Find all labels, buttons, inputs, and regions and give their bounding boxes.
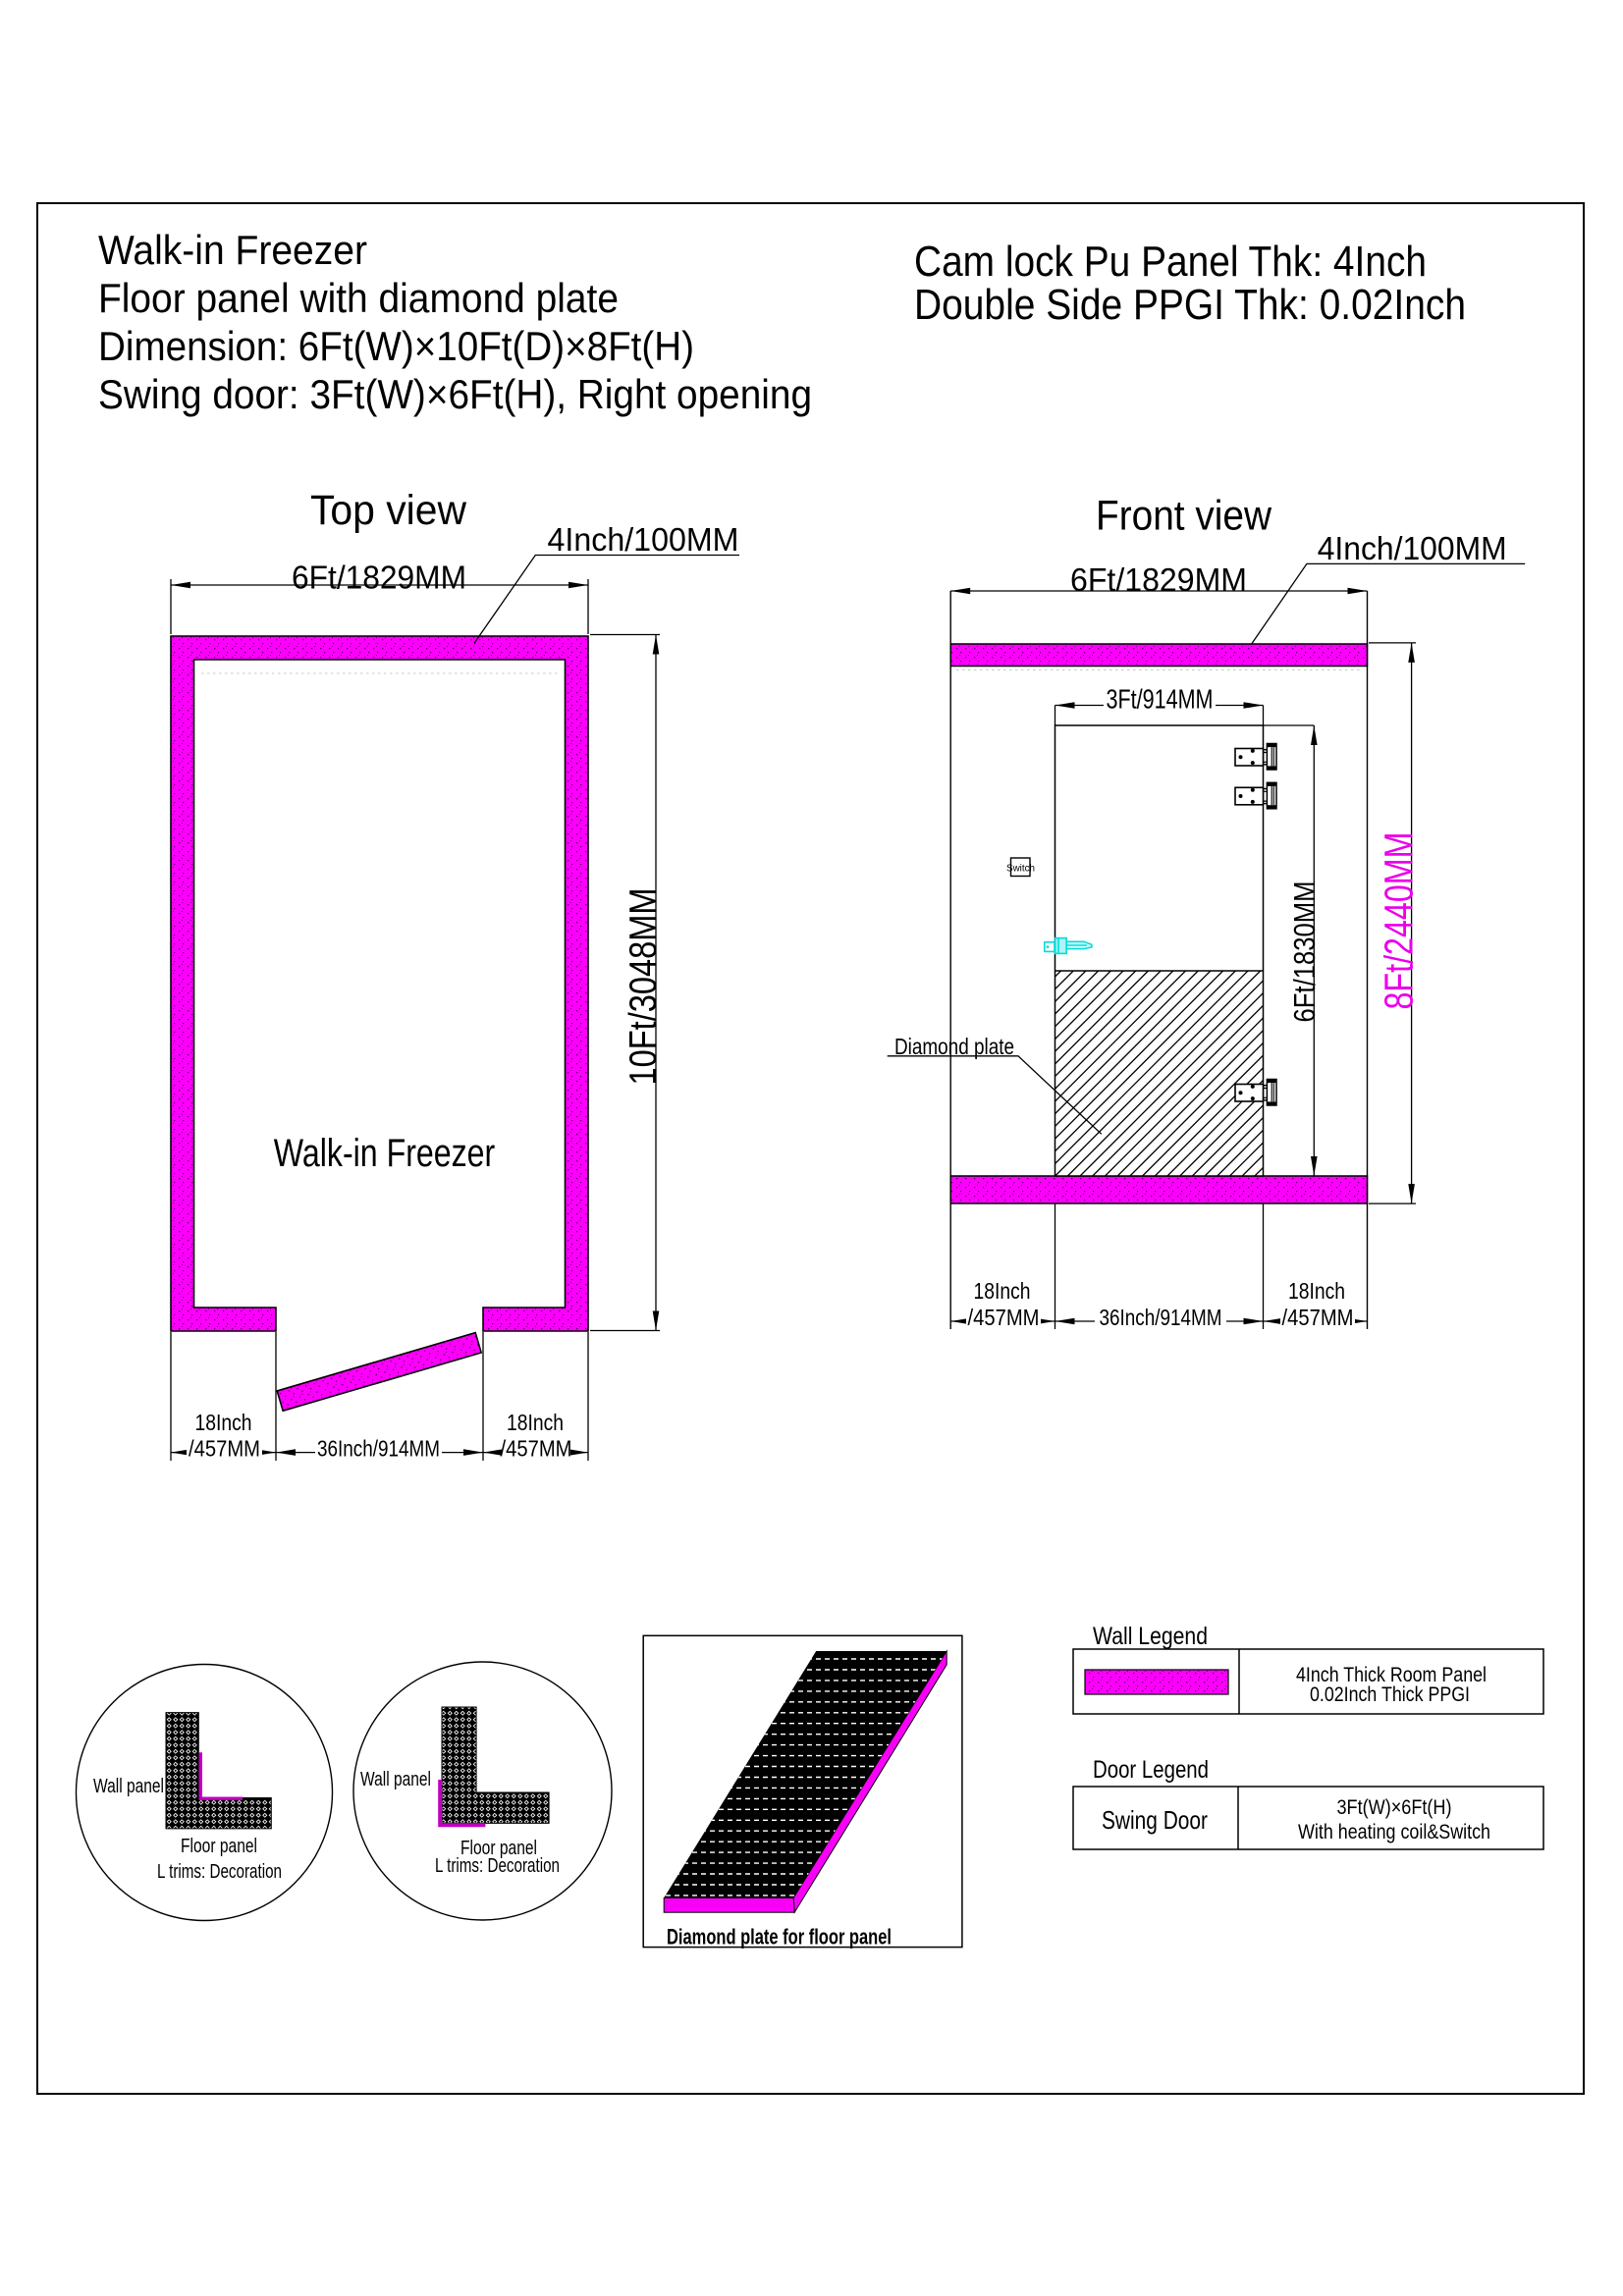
svg-text:Wall panel: Wall panel (93, 1775, 164, 1797)
svg-text:Dimension: 6Ft(W)×10Ft(D)×8Ft(: Dimension: 6Ft(W)×10Ft(D)×8Ft(H) (98, 323, 694, 369)
svg-text:Door Legend: Door Legend (1093, 1756, 1209, 1784)
svg-text:3Ft/914MM: 3Ft/914MM (1107, 684, 1214, 715)
svg-text:6Ft/1829MM: 6Ft/1829MM (1070, 561, 1247, 598)
svg-text:36Inch/914MM: 36Inch/914MM (1100, 1305, 1222, 1330)
svg-text:/457MM: /457MM (1282, 1305, 1354, 1330)
svg-text:3Ft(W)×6Ft(H): 3Ft(W)×6Ft(H) (1337, 1796, 1452, 1819)
svg-text:Swing door: 3Ft(W)×6Ft(H), Rig: Swing door: 3Ft(W)×6Ft(H), Right opening (98, 371, 812, 417)
svg-text:/457MM: /457MM (501, 1436, 572, 1462)
svg-text:36Inch/914MM: 36Inch/914MM (317, 1436, 440, 1462)
svg-text:4Inch/100MM: 4Inch/100MM (548, 521, 739, 558)
svg-text:18Inch: 18Inch (507, 1410, 564, 1435)
svg-text:Wall panel: Wall panel (360, 1768, 431, 1790)
svg-text:6Ft/1829MM: 6Ft/1829MM (292, 560, 466, 596)
svg-text:Walk-in Freezer: Walk-in Freezer (98, 227, 367, 273)
svg-text:6Ft/1830MM: 6Ft/1830MM (1287, 881, 1322, 1023)
svg-text:0.02Inch Thick PPGI: 0.02Inch Thick PPGI (1310, 1683, 1470, 1706)
svg-text:Swing Door: Swing Door (1102, 1805, 1208, 1835)
svg-text:Wall Legend: Wall Legend (1093, 1623, 1208, 1650)
svg-text:18Inch: 18Inch (195, 1410, 252, 1435)
svg-text:Top view: Top view (310, 488, 466, 534)
svg-text:Double Side PPGI Thk: 0.02Inch: Double Side PPGI Thk: 0.02Inch (914, 281, 1466, 329)
svg-text:18Inch: 18Inch (974, 1278, 1031, 1304)
svg-text:8Ft/2440MM: 8Ft/2440MM (1377, 832, 1422, 1010)
svg-text:Walk-in Freezer: Walk-in Freezer (274, 1132, 496, 1175)
svg-text:Diamond plate for floor panel: Diamond plate for floor panel (667, 1925, 892, 1949)
svg-text:4Inch/100MM: 4Inch/100MM (1318, 530, 1507, 566)
svg-text:With heating coil&Switch: With heating coil&Switch (1298, 1821, 1490, 1843)
svg-text:/457MM: /457MM (189, 1436, 260, 1462)
svg-text:Front view: Front view (1096, 494, 1271, 540)
svg-text:Floor panel: Floor panel (181, 1835, 257, 1857)
svg-text:Cam lock Pu Panel Thk: 4Inch: Cam lock Pu Panel Thk: 4Inch (914, 238, 1427, 286)
svg-text:Diamond plate: Diamond plate (894, 1034, 1014, 1059)
svg-text:L trims: Decoration: L trims: Decoration (435, 1854, 560, 1877)
svg-text:Floor panel with diamond plate: Floor panel with diamond plate (98, 275, 619, 321)
svg-text:Switch: Switch (1006, 863, 1035, 875)
svg-text:18Inch: 18Inch (1288, 1278, 1345, 1304)
svg-text:10Ft/3048MM: 10Ft/3048MM (622, 888, 665, 1086)
svg-text:L trims: Decoration: L trims: Decoration (157, 1860, 282, 1883)
svg-text:/457MM: /457MM (968, 1305, 1040, 1330)
